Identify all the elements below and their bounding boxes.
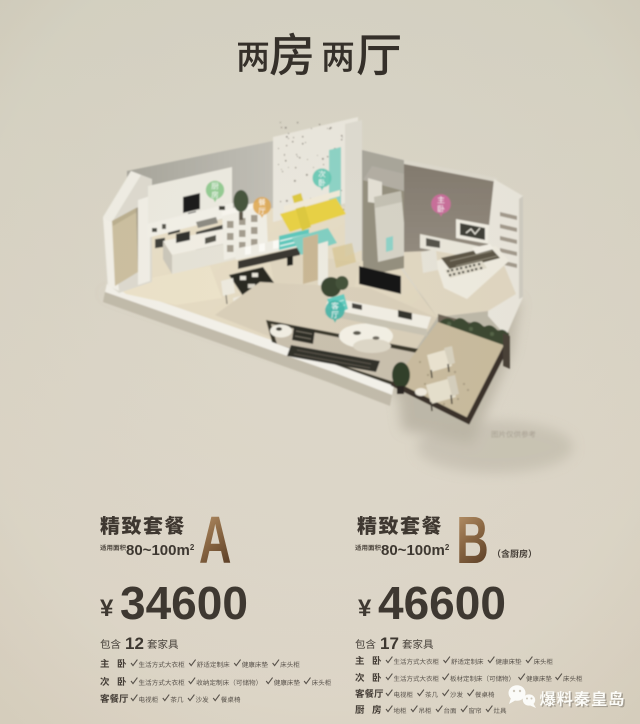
svg-text:46600: 46600 — [378, 577, 506, 629]
svg-text:B: B — [456, 503, 488, 578]
svg-text:80~100m2: 80~100m2 — [126, 542, 195, 559]
svg-text:¥: ¥ — [358, 595, 372, 622]
svg-text:34600: 34600 — [120, 577, 248, 629]
svg-text:¥: ¥ — [100, 595, 114, 622]
svg-text:A: A — [199, 503, 231, 578]
svg-text:17: 17 — [380, 634, 399, 653]
svg-text:12: 12 — [125, 634, 144, 653]
svg-text:80~100m2: 80~100m2 — [381, 542, 450, 559]
